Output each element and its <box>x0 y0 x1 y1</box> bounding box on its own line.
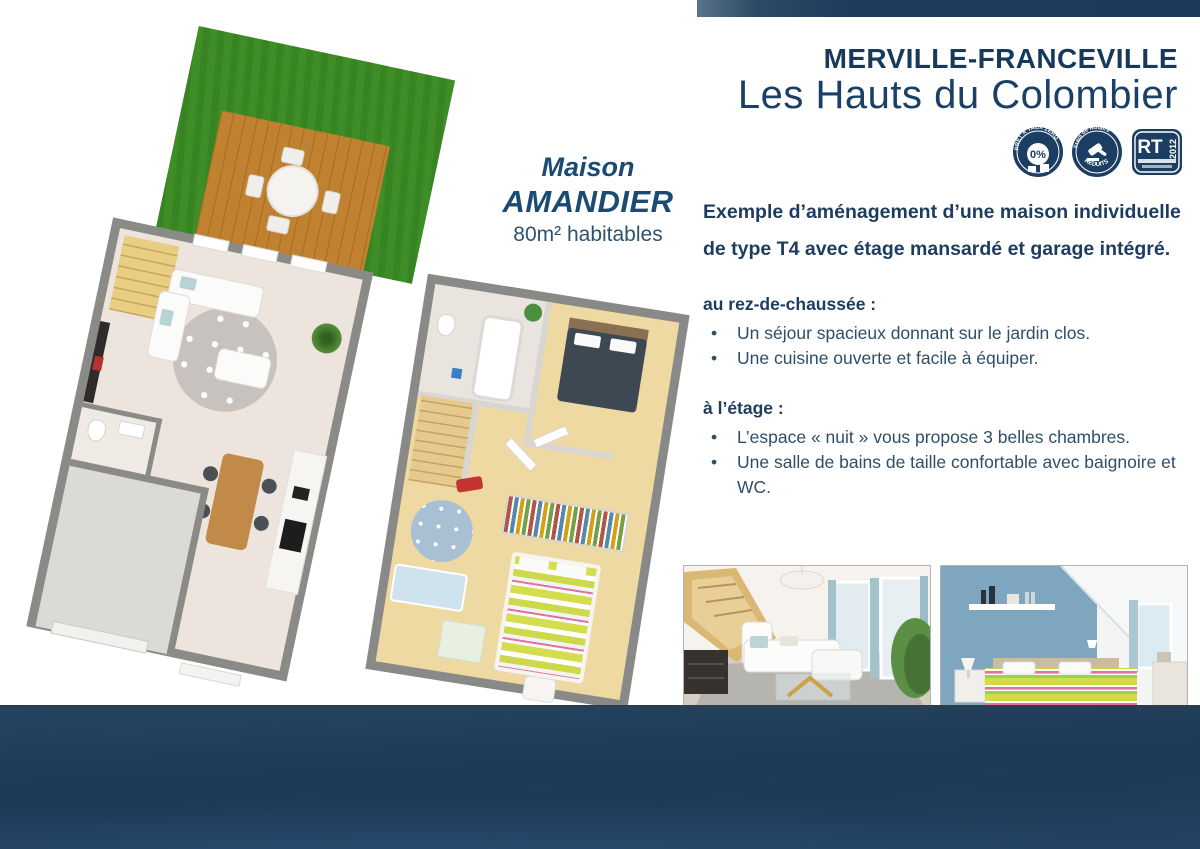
entrance-step <box>179 662 242 687</box>
section-upper-floor: à l’étage : L’espace « nuit » vous propo… <box>703 398 1189 500</box>
header-title-block: MERVILLE-FRANCEVILLE Les Hauts du Colomb… <box>618 44 1178 116</box>
house-model-label: Maison AMANDIER 80m² habitables <box>468 150 708 250</box>
section-heading-rdc: au rez-de-chaussée : <box>703 294 1189 315</box>
rt-label: RT <box>1137 137 1163 158</box>
dining-chair <box>260 477 278 495</box>
patio-chair <box>266 215 291 235</box>
rdc-bullet-list: Un séjour spacieux donnant sur le jardin… <box>703 321 1189 371</box>
section-ground-floor: au rez-de-chaussée : Un séjour spacieux … <box>703 294 1189 371</box>
house-label-line1: Maison <box>468 150 708 184</box>
kids-bed <box>389 563 468 612</box>
location-title: MERVILLE-FRANCEVILLE <box>618 44 1178 74</box>
bullet-item: L’espace « nuit » vous propose 3 belles … <box>703 425 1189 450</box>
bullet-item: Une cuisine ouverte et facile à équiper. <box>703 346 1189 371</box>
plant <box>309 321 345 357</box>
upper-floor-interior <box>376 284 680 700</box>
red-cabinet <box>92 356 104 372</box>
house-model-name: AMANDIER <box>468 184 708 220</box>
toy-car <box>456 476 484 493</box>
ground-floor-walls <box>26 217 373 681</box>
upper-floor-plan <box>365 274 689 711</box>
brochure-page: MERVILLE-FRANCEVILLE Les Hauts du Colomb… <box>0 0 1200 849</box>
pret-taux-zero-badge: PRÊT À TAUX ZÉRO 0% <box>1012 126 1064 178</box>
bullet-item: Une salle de bains de taille confortable… <box>703 450 1189 500</box>
patio-chair <box>280 146 305 166</box>
section-heading-etage: à l’étage : <box>703 398 1189 419</box>
ground-floor-interior <box>37 228 363 671</box>
intro-line-2: de type T4 avec étage mansardé et garage… <box>703 231 1189 268</box>
armchair <box>522 675 557 704</box>
house-pictogram <box>1040 164 1049 172</box>
play-mat <box>437 619 486 663</box>
dining-chair <box>252 514 270 532</box>
program-title: Les Hauts du Colombier <box>618 74 1178 116</box>
description-block: Exemple d’aménagement d’une maison indiv… <box>703 194 1189 500</box>
frais-notaire-badge: Frais de Notaire RÉDUITS <box>1071 126 1123 178</box>
rt-year-label: 2012 <box>1168 139 1178 159</box>
house-surface: 80m² habitables <box>468 220 708 250</box>
badge-microtext <box>1138 159 1176 163</box>
wardrobe-clothes-rack <box>501 494 630 553</box>
laundry-bin <box>451 368 462 379</box>
top-accent-bar <box>697 0 1200 17</box>
patio-chair <box>321 190 341 215</box>
kids-room-rug <box>406 496 477 567</box>
house-pictogram <box>1028 166 1036 172</box>
certification-badges: PRÊT À TAUX ZÉRO 0% Frais de Notaire <box>1012 126 1184 178</box>
badge-microtext <box>1142 165 1172 168</box>
etage-bullet-list: L’espace « nuit » vous propose 3 belles … <box>703 425 1189 500</box>
zero-percent-label: 0% <box>1030 149 1046 161</box>
bedroom1-bed <box>557 327 648 413</box>
intro-line-1: Exemple d’aménagement d’une maison indiv… <box>703 194 1189 231</box>
upper-floor-walls <box>365 274 689 711</box>
bullet-item: Un séjour spacieux donnant sur le jardin… <box>703 321 1189 346</box>
patio-chair <box>245 174 265 199</box>
patio-table <box>264 163 321 220</box>
rt-2012-badge: RT 2012 <box>1130 127 1184 177</box>
living-room-photo <box>683 565 931 708</box>
footer-band <box>0 705 1200 849</box>
bedroom-photo <box>940 565 1188 708</box>
interior-photos <box>683 565 1188 708</box>
